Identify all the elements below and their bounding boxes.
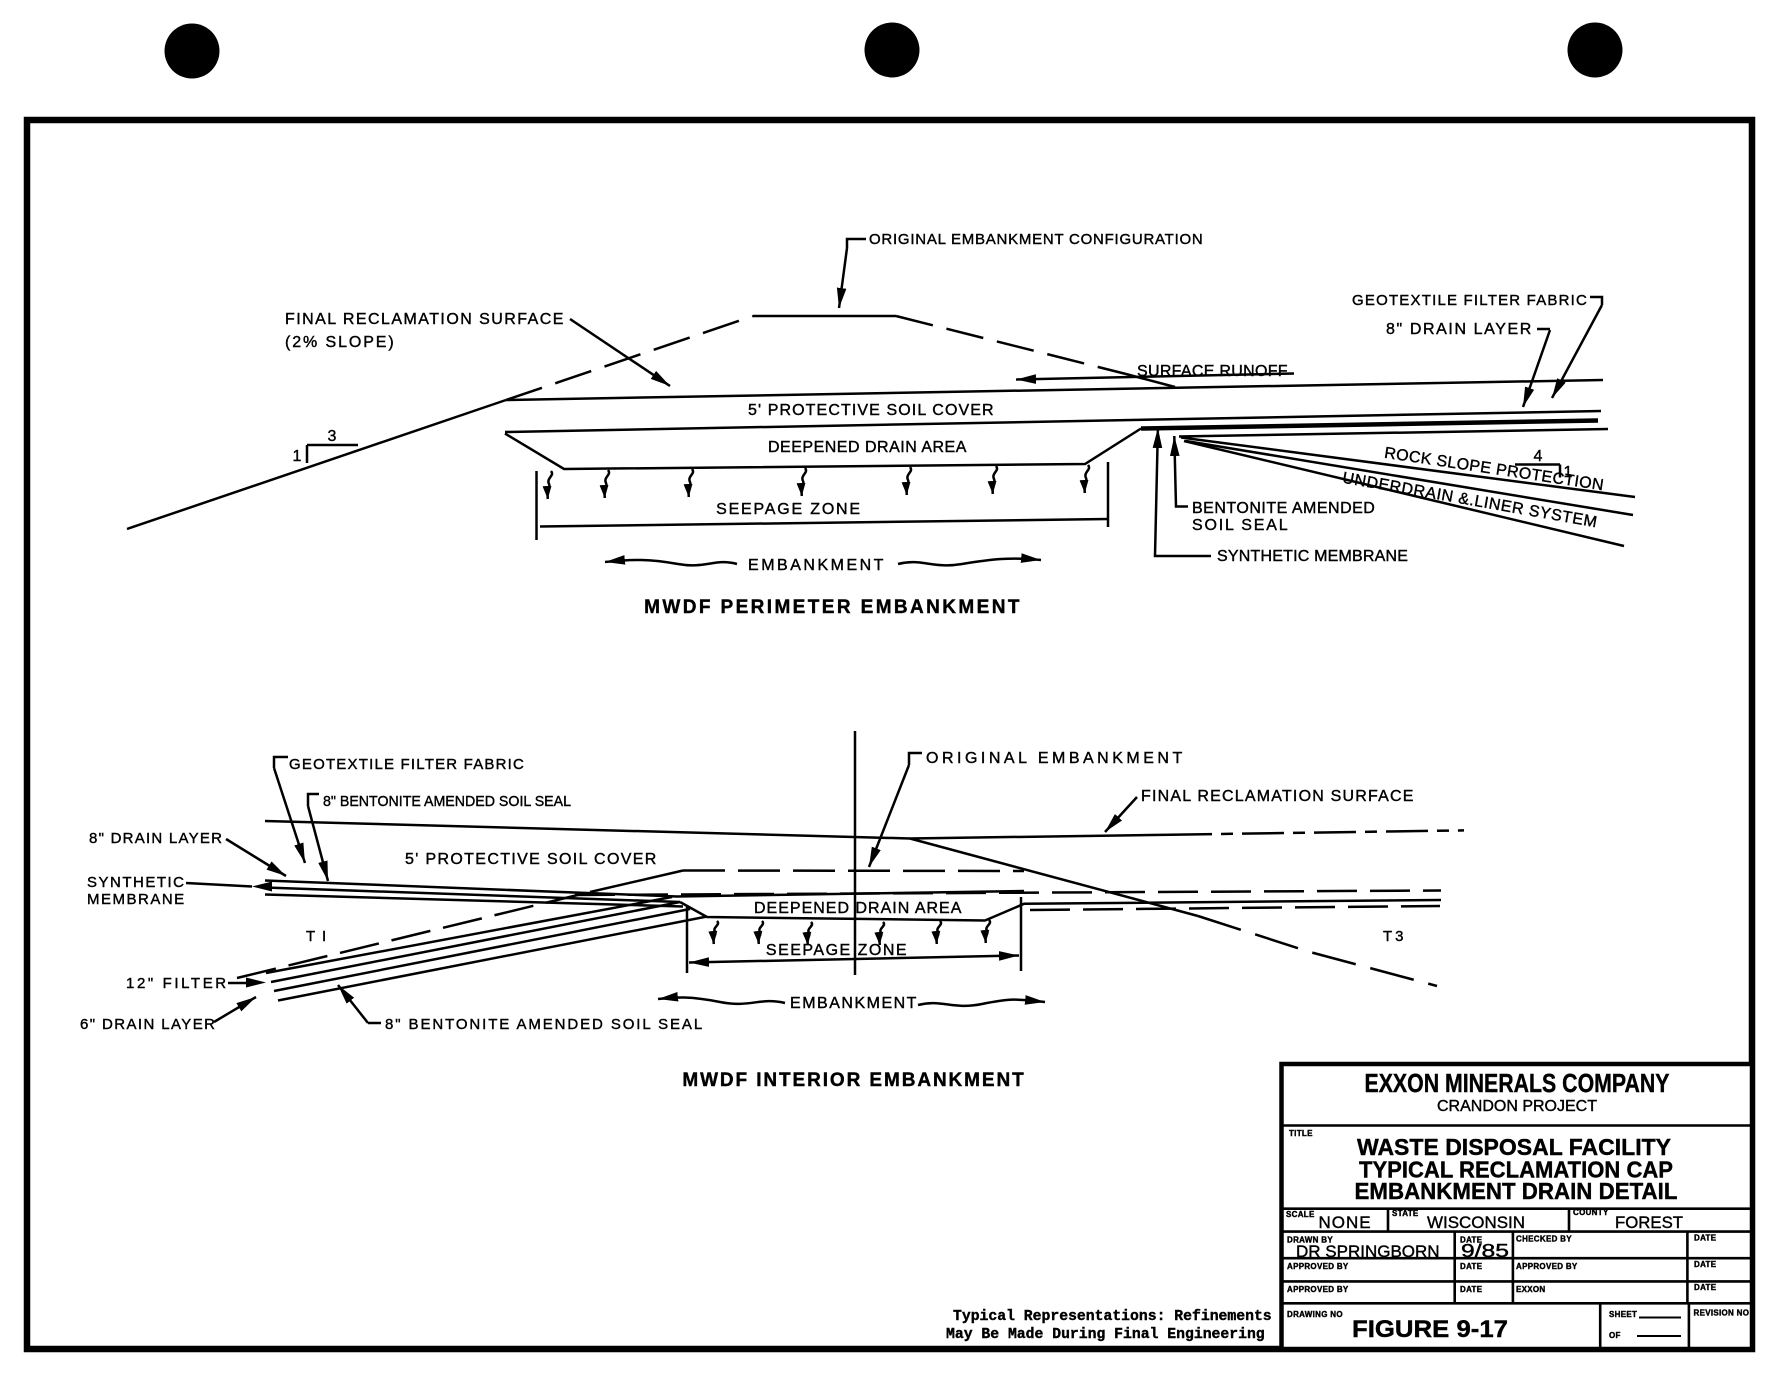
svg-text:MWDF PERIMETER EMBANKMENT: MWDF PERIMETER EMBANKMENT xyxy=(644,597,1022,618)
svg-text:SEEPAGE ZONE: SEEPAGE ZONE xyxy=(716,501,862,518)
svg-text:SYNTHETIC: SYNTHETIC xyxy=(87,874,186,891)
svg-text:T I: T I xyxy=(306,928,328,945)
svg-text:WISCONSIN: WISCONSIN xyxy=(1427,1213,1525,1232)
svg-text:EMBANKMENT: EMBANKMENT xyxy=(748,557,886,574)
svg-text:FIGURE 9-17: FIGURE 9-17 xyxy=(1352,1316,1508,1343)
svg-text:EMBANKMENT: EMBANKMENT xyxy=(790,995,918,1012)
svg-text:4: 4 xyxy=(1534,448,1543,465)
svg-text:OF: OF xyxy=(1609,1331,1621,1340)
svg-text:FOREST: FOREST xyxy=(1615,1213,1683,1232)
svg-text:DRAWING NO: DRAWING NO xyxy=(1287,1310,1343,1319)
svg-text:DATE: DATE xyxy=(1694,1283,1717,1292)
svg-text:DATE: DATE xyxy=(1460,1285,1483,1294)
svg-text:NONE: NONE xyxy=(1318,1213,1371,1232)
svg-text:BENTONITE AMENDED: BENTONITE AMENDED xyxy=(1192,500,1375,517)
svg-text:SEEPAGE ZONE: SEEPAGE ZONE xyxy=(766,942,908,959)
svg-text:FINAL RECLAMATION SURFACE: FINAL RECLAMATION SURFACE xyxy=(1141,788,1415,805)
svg-text:APPROVED BY: APPROVED BY xyxy=(1287,1285,1349,1294)
svg-text:GEOTEXTILE FILTER FABRIC: GEOTEXTILE FILTER FABRIC xyxy=(1352,292,1588,309)
svg-text:APPROVED BY: APPROVED BY xyxy=(1287,1262,1349,1271)
svg-text:SHEET: SHEET xyxy=(1609,1310,1637,1319)
svg-text:May Be Made During Final Engin: May Be Made During Final Engineering xyxy=(946,1327,1265,1343)
svg-text:ORIGINAL EMBANKMENT: ORIGINAL EMBANKMENT xyxy=(926,750,1186,767)
svg-text:1: 1 xyxy=(1564,464,1573,481)
svg-text:DEEPENED DRAIN AREA: DEEPENED DRAIN AREA xyxy=(754,900,962,917)
svg-text:DR SPRINGBORN: DR SPRINGBORN xyxy=(1296,1242,1440,1261)
svg-text:5' PROTECTIVE SOIL COVER: 5' PROTECTIVE SOIL COVER xyxy=(748,402,995,419)
svg-text:FINAL RECLAMATION SURFACE: FINAL RECLAMATION SURFACE xyxy=(285,311,565,328)
svg-text:EXXON MINERALS COMPANY: EXXON MINERALS COMPANY xyxy=(1365,1068,1670,1098)
svg-text:COUNTY: COUNTY xyxy=(1573,1208,1609,1217)
svg-text:8" BENTONITE AMENDED SOIL SEAL: 8" BENTONITE AMENDED SOIL SEAL xyxy=(385,1016,704,1033)
svg-text:GEOTEXTILE FILTER FABRIC: GEOTEXTILE FILTER FABRIC xyxy=(289,756,525,773)
svg-text:CRANDON PROJECT: CRANDON PROJECT xyxy=(1437,1098,1597,1115)
svg-text:Typical Representations: Refi: Typical Representations: Refinements xyxy=(953,1309,1272,1325)
svg-text:DEEPENED DRAIN AREA: DEEPENED DRAIN AREA xyxy=(768,439,967,456)
svg-text:8" BENTONITE AMENDED SOIL SEAL: 8" BENTONITE AMENDED SOIL SEAL xyxy=(323,793,571,810)
svg-text:EMBANKMENT DRAIN DETAIL: EMBANKMENT DRAIN DETAIL xyxy=(1355,1178,1678,1204)
svg-text:TITLE: TITLE xyxy=(1289,1129,1313,1138)
svg-text:SOIL SEAL: SOIL SEAL xyxy=(1192,517,1289,534)
svg-text:SYNTHETIC MEMBRANE: SYNTHETIC MEMBRANE xyxy=(1217,548,1408,565)
svg-text:T3: T3 xyxy=(1383,928,1407,945)
svg-text:1: 1 xyxy=(293,448,302,465)
svg-text:12" FILTER: 12" FILTER xyxy=(126,975,229,992)
svg-text:6" DRAIN LAYER: 6" DRAIN LAYER xyxy=(80,1016,216,1033)
svg-text:DATE: DATE xyxy=(1694,1260,1717,1269)
svg-text:MEMBRANE: MEMBRANE xyxy=(87,891,186,908)
svg-text:CHECKED BY: CHECKED BY xyxy=(1516,1235,1572,1244)
svg-text:8" DRAIN LAYER: 8" DRAIN LAYER xyxy=(1386,321,1533,338)
svg-text:STATE: STATE xyxy=(1392,1209,1419,1218)
svg-text:REVISION NO: REVISION NO xyxy=(1694,1309,1750,1318)
svg-text:EXXON: EXXON xyxy=(1516,1285,1546,1294)
svg-text:DATE: DATE xyxy=(1694,1234,1717,1243)
svg-text:ORIGINAL EMBANKMENT CONFIGURAT: ORIGINAL EMBANKMENT CONFIGURATION xyxy=(869,231,1204,248)
svg-text:5' PROTECTIVE SOIL COVER: 5' PROTECTIVE SOIL COVER xyxy=(405,851,658,868)
svg-text:MWDF INTERIOR EMBANKMENT: MWDF INTERIOR EMBANKMENT xyxy=(682,1070,1025,1091)
svg-text:SCALE: SCALE xyxy=(1286,1210,1315,1219)
svg-text:(2% SLOPE): (2% SLOPE) xyxy=(285,334,396,351)
svg-text:DATE: DATE xyxy=(1460,1262,1483,1271)
svg-text:APPROVED BY: APPROVED BY xyxy=(1516,1262,1578,1271)
svg-text:8" DRAIN LAYER: 8" DRAIN LAYER xyxy=(89,830,223,847)
svg-text:3: 3 xyxy=(328,428,337,445)
svg-text:9/85: 9/85 xyxy=(1461,1241,1509,1261)
